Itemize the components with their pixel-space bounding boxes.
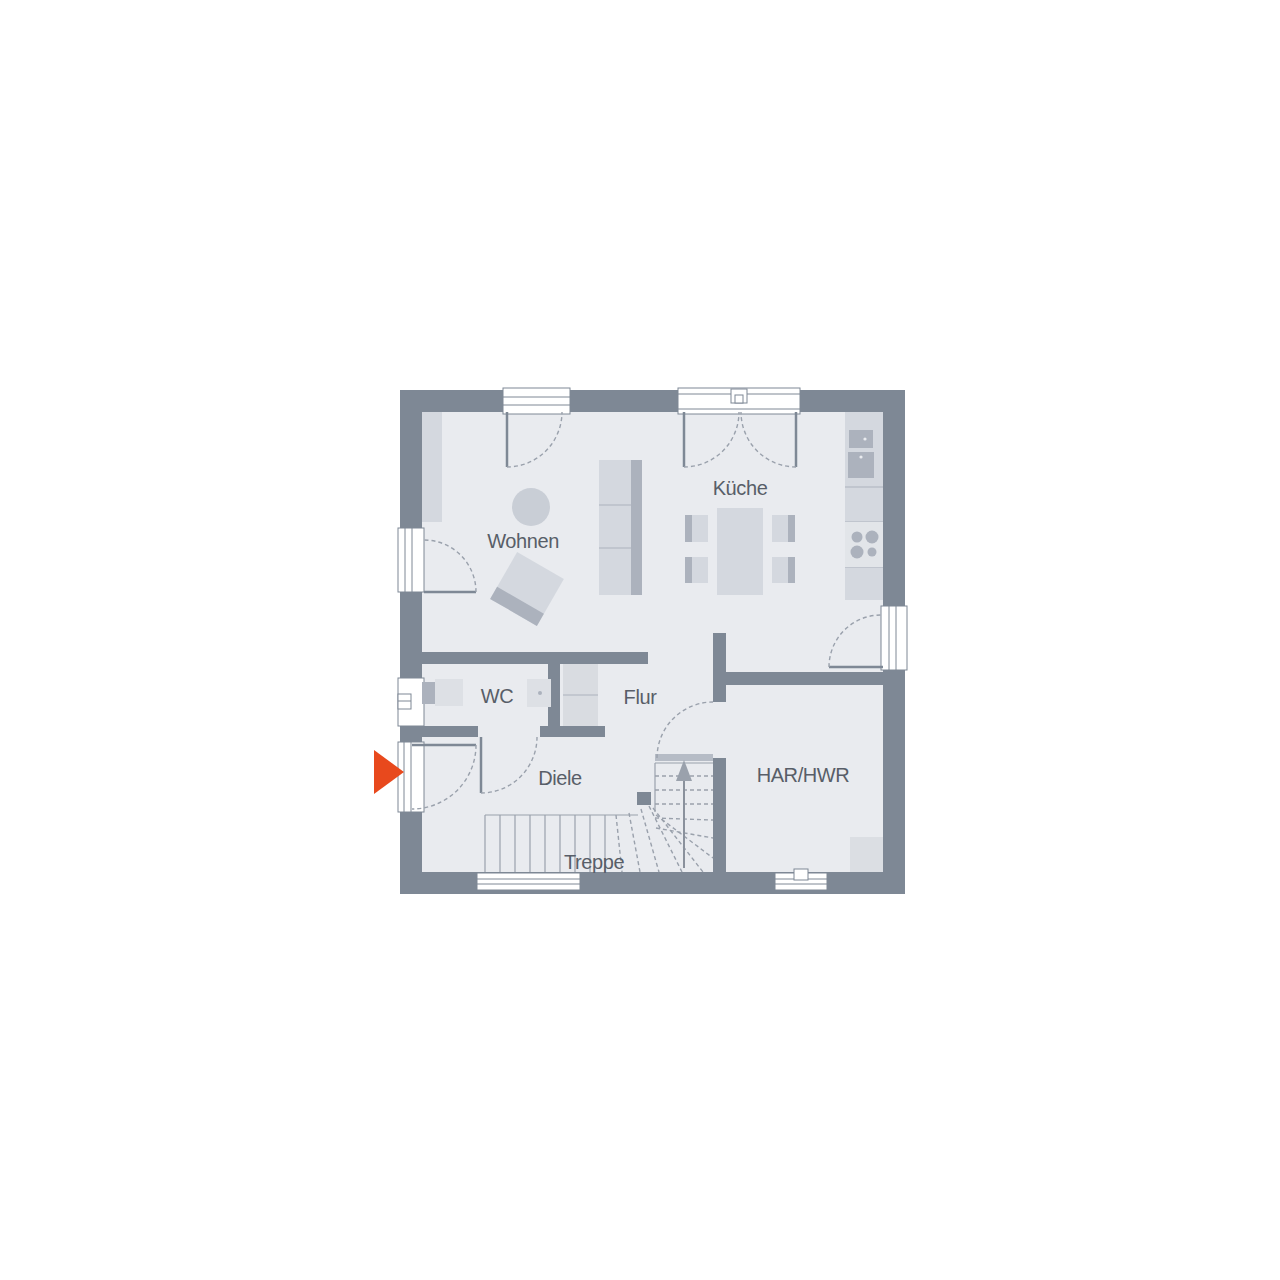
kitchen-counter xyxy=(845,412,883,600)
dining-chair xyxy=(772,515,795,542)
stair-newel-post xyxy=(637,792,651,805)
room-label-har-hwr: HAR/HWR xyxy=(757,764,850,786)
utility-equipment-pad xyxy=(850,837,883,872)
window-bottom-treppe xyxy=(477,873,580,890)
room-label-kueche: Küche xyxy=(713,477,768,499)
wc-toilet xyxy=(527,679,551,707)
room-label-wohnen: Wohnen xyxy=(487,530,559,552)
room-label-treppe: Treppe xyxy=(564,851,625,873)
cooktop xyxy=(845,522,883,567)
floorplan-canvas: Wohnen Küche WC Flur Diele HAR/HWR Trepp… xyxy=(0,0,1280,1280)
dining-chair xyxy=(685,557,708,583)
floor-area xyxy=(410,400,897,886)
shelf-unit xyxy=(599,460,642,595)
side-table xyxy=(512,488,550,526)
window-top-wohnen xyxy=(503,388,570,414)
dining-chair xyxy=(772,557,795,583)
dining-chair xyxy=(685,515,708,542)
room-label-wc: WC xyxy=(481,685,514,707)
room-label-diele: Diele xyxy=(538,767,582,789)
wardrobe xyxy=(563,664,598,726)
wc-sink xyxy=(422,679,463,706)
kitchen-sink xyxy=(849,430,873,448)
window-wc xyxy=(398,678,424,726)
dining-table xyxy=(717,508,763,595)
sideboard xyxy=(422,412,442,522)
floorplan-drawing: Wohnen Küche WC Flur Diele HAR/HWR Trepp… xyxy=(0,0,1280,1280)
room-label-flur: Flur xyxy=(624,686,658,708)
